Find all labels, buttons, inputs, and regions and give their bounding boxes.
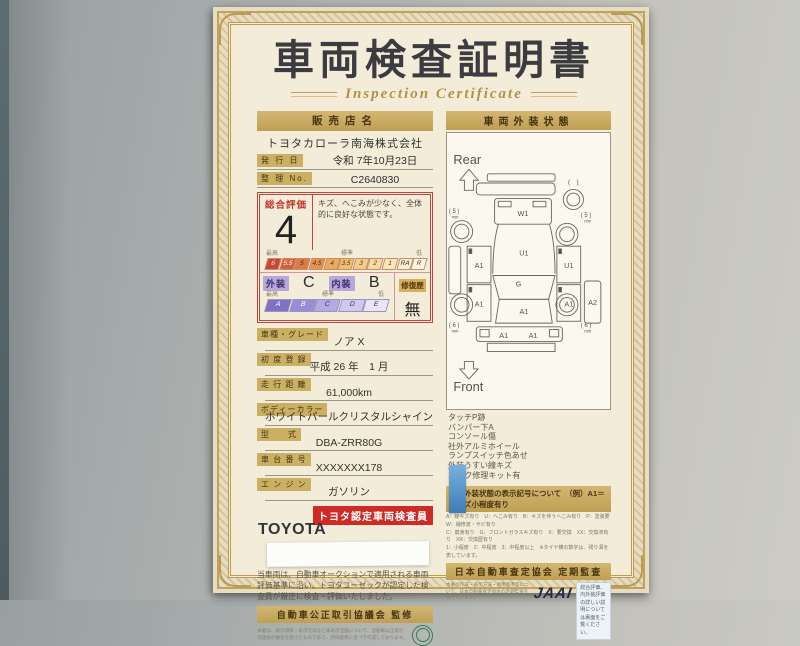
field-chassis-number: 車 台 番 号 XXXXXXX178 <box>257 453 433 478</box>
field-value: ノア X <box>265 334 433 351</box>
reference-number-value: C2640830 <box>317 174 433 186</box>
marker-hood: A1 <box>519 307 528 316</box>
fair-trade-note: 本書は、表示項目・表示方法など本表示全般について、自動車公正取引協議会の審査を受… <box>257 628 408 642</box>
dealer-name: トヨタカローラ南海株式会社 <box>257 135 433 151</box>
interior-label: 内装 <box>329 276 355 291</box>
grade-cell: B <box>289 299 316 312</box>
assessor-note: 本書の作成・表示方法・適用基準等について、日本自動車査定協会の定期監査を受けてい… <box>446 582 530 603</box>
certificate-subtitle-row: Inspection Certificate <box>257 86 611 103</box>
reference-number-row: 整 理 No. C2640830 <box>257 172 433 188</box>
tire-unit: mm <box>452 215 459 220</box>
marker-left-rear-door: A1 <box>475 261 484 270</box>
note-line: パンク修理キット有 <box>448 471 611 481</box>
overall-rating-value: 4 <box>260 211 312 249</box>
issue-date-label: 発 行 日 <box>257 154 303 167</box>
condition-comment: キズ、へこみが少なく、全体的に良好な状態です。 <box>313 195 430 250</box>
assessor-banner: 日本自動車査定協会 定期監査 <box>446 563 611 580</box>
left-column: 販売店名 トヨタカローラ南海株式会社 発 行 日 令和 7年10月23日 整 理… <box>257 111 433 646</box>
reference-number-label: 整 理 No. <box>257 172 312 185</box>
field-value: 61,000km <box>265 387 433 401</box>
symbol-legend: 車両外装状態の表示記号について （例）A1＝線キズ小程度有り A：線キズ有り U… <box>446 486 611 561</box>
front-label: Front <box>453 379 483 394</box>
note-line: 外装うすい線キズ <box>448 461 611 471</box>
tire-unit: mm <box>584 328 591 333</box>
car-top-view-diagram: Rear ( ) W1 ( 5 ) mm ( 5 ) mm U1 A1 U1 A… <box>447 133 610 407</box>
fair-trade-footer: 自動車公正取引協議会 監修 本書は、表示項目・表示方法など本表示全般について、自… <box>257 606 433 646</box>
exterior-label: 外装 <box>263 276 289 291</box>
blank-sticky-note <box>267 541 429 567</box>
spare-tire-icon <box>563 189 583 209</box>
scale-label-high: 最高 <box>266 251 278 257</box>
field-model-code: 型 式 DBA-ZRR80G <box>257 428 433 453</box>
grade-label-high: 最高 <box>266 292 278 298</box>
marker-glass: G <box>516 280 522 289</box>
repair-history: 修復歴 無 <box>394 273 430 320</box>
grade-cell: D <box>338 299 365 312</box>
rear-arrow-icon <box>460 169 478 190</box>
dealer-header: 販売店名 <box>257 111 433 131</box>
interior-grade: B <box>357 275 392 291</box>
repair-history-value: 無 <box>395 296 430 320</box>
scale-cell: R <box>411 258 428 270</box>
field-engine: エ ン ジ ン ガソリン <box>257 478 433 503</box>
legend-line: 1：小程度 2：中程度 3：中程度以上 ※タイヤ横の数字は、残り溝を表しています… <box>446 545 611 561</box>
certificate-content: 車両検査証明書 Inspection Certificate 販売店名 トヨタカ… <box>228 22 634 578</box>
certificate-subtitle: Inspection Certificate <box>345 86 523 103</box>
legend-line: A：線キズ有り U：へこみ有り B：キズを伴うへこみ有り P：塗装要 W：補修波… <box>446 514 611 530</box>
field-value: ガソリン <box>265 484 433 501</box>
marker-right-side: A2 <box>588 298 597 307</box>
grade-scale: A B C D E <box>260 298 394 315</box>
note-line: 社外アルミホイール <box>448 442 611 452</box>
marker-right-front-door: A1 <box>564 300 573 309</box>
note-line: コンソール傷 <box>448 432 611 442</box>
right-flourish-line <box>531 92 577 97</box>
marker-cargo: U1 <box>519 248 528 257</box>
inspection-certificate-paper: 車両検査証明書 Inspection Certificate 販売店名 トヨタカ… <box>213 7 649 593</box>
tire-unit: mm <box>452 328 459 333</box>
grade-scale-labels: 最高 標準 低 <box>260 291 394 298</box>
grade-cell: C <box>313 299 340 312</box>
certification-seal-icon <box>412 625 433 646</box>
legend-line: C：腐食有り G：フロントガラスキズ有り X：要交換 XX：交換済有り XR：交… <box>446 530 611 546</box>
inspector-area: トヨタ認定車両検査員 TOYOTA <box>257 506 433 542</box>
desk-shadow <box>9 0 69 600</box>
inspection-disclaimer: 当車両は、自動車オークションで適用される車両評価基準に沿い、トヨタユーゼックが認… <box>257 570 433 603</box>
certified-inspector-badge: トヨタ認定車両検査員 <box>313 506 433 525</box>
field-model-grade: 車種・グレード ノア X <box>257 328 433 353</box>
issue-date-value: 令和 7年10月23日 <box>317 153 433 168</box>
grade-label-low: 低 <box>378 292 384 298</box>
marker-rear-gate: W1 <box>518 209 529 218</box>
field-value: ホワイトパールクリスタルシャイン <box>265 409 433 426</box>
repair-history-label: 修復歴 <box>399 279 426 292</box>
note-line: ランプスイッチ色あせ <box>448 451 611 461</box>
exterior-grade: C <box>291 275 326 291</box>
blue-sticky-tab <box>449 465 466 513</box>
issue-date-row: 発 行 日 令和 7年10月23日 <box>257 154 433 170</box>
front-arrow-icon <box>460 362 478 379</box>
marker-right-rear-door: U1 <box>564 261 573 270</box>
marker-left-front-door: A1 <box>475 300 484 309</box>
note-line: タッチP跡 <box>448 413 611 423</box>
fair-trade-banner: 自動車公正取引協議会 監修 <box>257 606 433 623</box>
legend-header: 車両外装状態の表示記号について （例）A1＝線キズ小程度有り <box>446 486 611 512</box>
desk-background: { "certificate": { "title": "車両検査証明書", "… <box>0 0 800 600</box>
spare-tire-label: ( ) <box>568 179 579 186</box>
field-value: DBA-ZRR80G <box>265 437 433 451</box>
grade-label-standard: 標準 <box>322 292 334 298</box>
tire-unit: mm <box>584 218 591 223</box>
scale-label-low: 低 <box>416 251 422 257</box>
certificate-title: 車両検査証明書 <box>257 39 611 82</box>
note-line: バンパー下A <box>448 423 611 433</box>
left-flourish-line <box>291 92 337 97</box>
field-first-registration: 初 度 登 録 平成 26 年 1 月 <box>257 353 433 378</box>
condition-notes: タッチP跡 バンパー下A コンソール傷 社外アルミホイール ランプスイッチ色あせ… <box>446 413 611 480</box>
exterior-condition-header: 車両外装状態 <box>446 111 611 130</box>
toyota-wordmark: TOYOTA <box>258 521 326 539</box>
grade-cell: A <box>264 299 291 312</box>
see-reverse-note: 総合評価、内外装評価の詳しい説明については裏面をご覧ください。 <box>576 582 611 641</box>
scale-label-standard: 標準 <box>341 251 353 257</box>
marker-front-bumper-left: A1 <box>499 331 508 340</box>
vehicle-exterior-diagram: Rear ( ) W1 ( 5 ) mm ( 5 ) mm U1 A1 U1 A… <box>446 132 611 410</box>
marker-front-bumper-right: A1 <box>529 331 538 340</box>
jaai-logo: JAAI <box>533 585 574 602</box>
grade-cell: E <box>363 299 390 312</box>
vehicle-fields: 車種・グレード ノア X 初 度 登 録 平成 26 年 1 月 走 行 距 離… <box>257 328 433 503</box>
rating-scale: 6 5.5 5 4.5 4 3.5 3 2 1 RA R <box>260 257 430 272</box>
rear-label: Rear <box>453 152 482 167</box>
overall-rating-score: 総合評価 4 <box>260 195 313 250</box>
field-value: 平成 26 年 1 月 <box>265 359 433 376</box>
field-body-color: ボディーカラー ホワイトパールクリスタルシャイン <box>257 403 433 428</box>
desk-edge <box>0 0 9 600</box>
field-value: XXXXXXX178 <box>265 462 433 476</box>
interior-exterior-grades: 外装 C 内装 B 最高 標準 低 <box>260 273 394 320</box>
field-mileage: 走 行 距 離 61,000km <box>257 378 433 403</box>
overall-rating-box: 総合評価 4 キズ、へこみが少なく、全体的に良好な状態です。 最高 標準 低 6 <box>257 192 433 323</box>
right-column: 車両外装状態 <box>446 111 611 646</box>
assessor-footer: 本書の作成・表示方法・適用基準等について、日本自動車査定協会の定期監査を受けてい… <box>446 582 611 641</box>
